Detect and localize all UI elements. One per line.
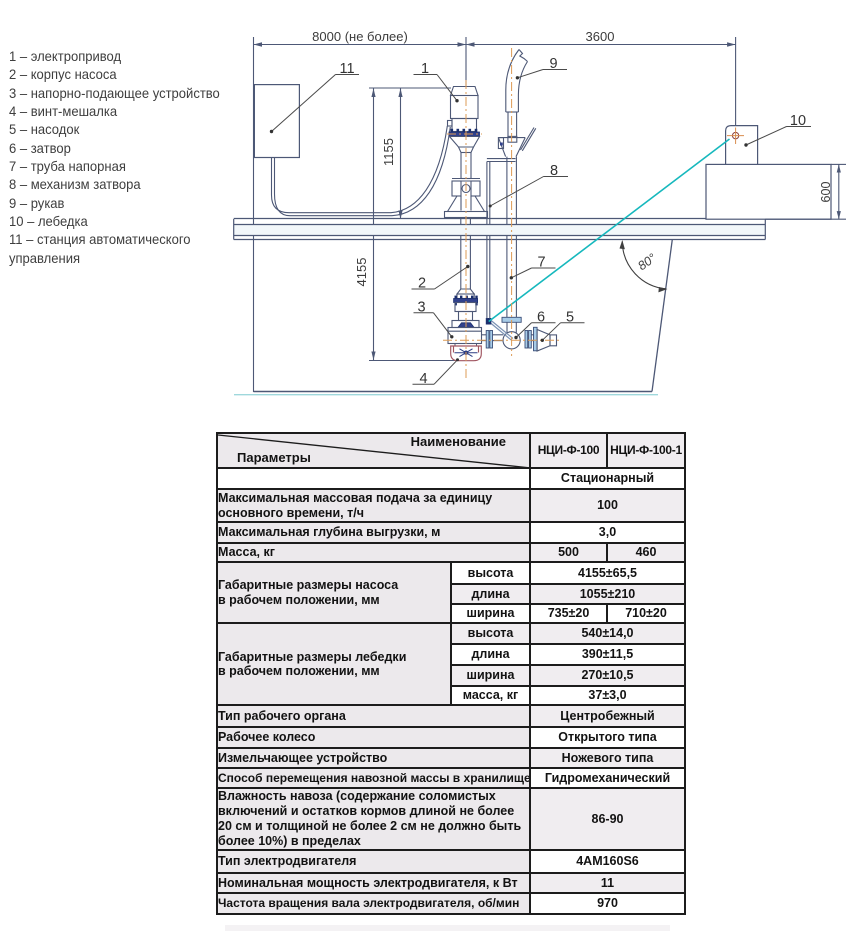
svg-text:4155: 4155 — [354, 258, 369, 287]
svg-text:8000 (не более): 8000 (не более) — [312, 29, 408, 44]
svg-text:80°: 80° — [635, 251, 659, 273]
svg-text:3600: 3600 — [586, 29, 615, 44]
svg-text:600: 600 — [819, 182, 833, 203]
svg-text:1155: 1155 — [381, 138, 396, 166]
